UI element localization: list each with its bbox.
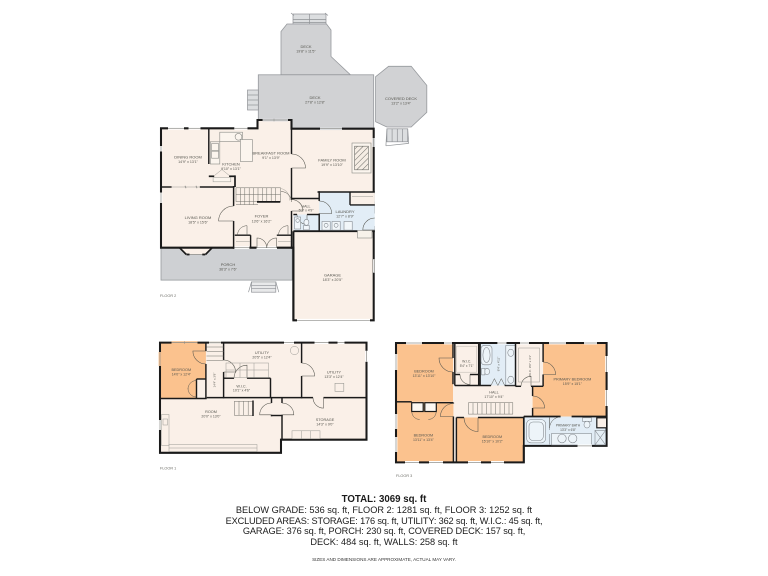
svg-text:GARAGE: GARAGE xyxy=(324,272,341,277)
svg-text:13'11" x 13'10": 13'11" x 13'10" xyxy=(413,374,437,378)
svg-text:HALL: HALL xyxy=(489,391,499,395)
svg-text:15'9" x 15'1": 15'9" x 15'1" xyxy=(563,382,583,386)
svg-text:DINING ROOM: DINING ROOM xyxy=(174,155,202,160)
svg-text:FLOOR 2: FLOOR 2 xyxy=(160,294,176,298)
svg-text:20'0" x 13'0": 20'0" x 13'0" xyxy=(201,415,221,419)
svg-text:27'8" x 12'8": 27'8" x 12'8" xyxy=(305,101,325,105)
svg-text:9'10" x 13'1": 9'10" x 13'1" xyxy=(221,167,241,171)
svg-text:LIVING ROOM: LIVING ROOM xyxy=(185,215,212,220)
svg-text:DECK: DECK xyxy=(300,44,311,49)
svg-text:20'5" x 12'4": 20'5" x 12'4" xyxy=(252,356,272,360)
svg-text:5'2" x 4'9": 5'2" x 4'9" xyxy=(299,209,315,213)
svg-text:18'5" x 15'6": 18'5" x 15'6" xyxy=(188,220,208,224)
svg-text:LAUNDRY: LAUNDRY xyxy=(335,209,354,214)
svg-text:UTILITY: UTILITY xyxy=(255,351,270,355)
svg-text:STORAGE: STORAGE xyxy=(316,418,335,422)
svg-text:W.I.C. 9'0" x 3'1": W.I.C. 9'0" x 3'1" xyxy=(528,355,532,377)
svg-text:14'0" x 12'4": 14'0" x 12'4" xyxy=(172,373,192,377)
svg-text:FLOOR 3: FLOOR 3 xyxy=(396,474,412,478)
svg-text:FOYER: FOYER xyxy=(255,214,269,219)
svg-text:14'3" x 9'0": 14'3" x 9'0" xyxy=(316,422,334,426)
svg-text:14'4" x 3'8": 14'4" x 3'8" xyxy=(213,373,217,388)
svg-text:8'4" x 4'11": 8'4" x 4'11" xyxy=(497,357,501,372)
svg-text:W.I.C.: W.I.C. xyxy=(236,384,246,388)
svg-text:BEDROOM: BEDROOM xyxy=(171,368,191,372)
svg-text:13'3" x 6'8": 13'3" x 6'8" xyxy=(560,428,576,432)
svg-text:13'3" x 12'4": 13'3" x 12'4" xyxy=(324,375,344,379)
svg-text:ROOM: ROOM xyxy=(205,410,217,414)
svg-text:FAMILY ROOM: FAMILY ROOM xyxy=(318,158,345,163)
svg-text:COVERED DECK: COVERED DECK xyxy=(385,96,417,101)
svg-text:19'8" x 11'5": 19'8" x 11'5" xyxy=(296,50,316,54)
svg-text:10'1" x 4'6": 10'1" x 4'6" xyxy=(233,389,251,393)
svg-text:9'1" x 13'9": 9'1" x 13'9" xyxy=(262,156,280,160)
svg-text:18'3" x 20'5": 18'3" x 20'5" xyxy=(323,278,343,282)
svg-text:PORCH: PORCH xyxy=(221,262,236,267)
svg-text:PRIMARY BEDROOM: PRIMARY BEDROOM xyxy=(553,377,591,381)
svg-text:17'10" x 9'4": 17'10" x 9'4" xyxy=(484,395,504,399)
svg-text:14'9" x 13'1": 14'9" x 13'1" xyxy=(178,160,198,164)
svg-text:19'9" x 13'10": 19'9" x 13'10" xyxy=(321,163,343,167)
svg-text:15'10" x 10'2": 15'10" x 10'2" xyxy=(482,439,504,443)
svg-text:5'4" x 7'1": 5'4" x 7'1" xyxy=(460,364,474,368)
svg-text:DECK: DECK xyxy=(309,95,320,100)
svg-text:BREAKFAST ROOM: BREAKFAST ROOM xyxy=(252,150,289,155)
svg-text:BEDROOM: BEDROOM xyxy=(482,435,502,439)
svg-text:UTILITY: UTILITY xyxy=(327,370,342,374)
svg-text:12'7" x 8'9": 12'7" x 8'9" xyxy=(336,214,354,218)
svg-text:PRIMARY BATH: PRIMARY BATH xyxy=(556,424,581,428)
svg-text:BEDROOM: BEDROOM xyxy=(414,370,434,374)
svg-text:13'11" x 13'4": 13'11" x 13'4" xyxy=(413,438,435,442)
svg-text:KITCHEN: KITCHEN xyxy=(222,162,240,167)
svg-text:36'3" x 7'6": 36'3" x 7'6" xyxy=(219,268,237,272)
svg-text:FLOOR 1: FLOOR 1 xyxy=(160,467,176,471)
svg-text:13'2" x 13'4": 13'2" x 13'4" xyxy=(391,101,411,105)
svg-text:13'6" x 16'2": 13'6" x 16'2" xyxy=(252,219,272,223)
svg-text:BEDROOM: BEDROOM xyxy=(414,433,434,437)
